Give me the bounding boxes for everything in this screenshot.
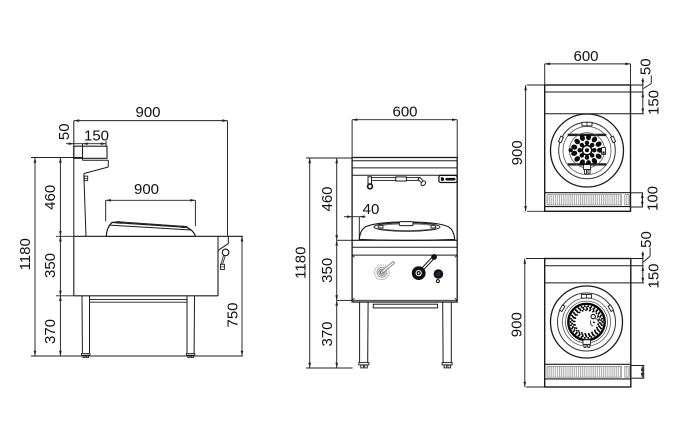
svg-text:1180: 1180 (293, 247, 310, 279)
svg-text:900: 900 (509, 312, 526, 337)
svg-text:600: 600 (392, 104, 417, 121)
svg-text:40: 40 (363, 201, 380, 218)
svg-text:150: 150 (645, 90, 662, 115)
svg-text:100: 100 (645, 186, 662, 211)
svg-text:460: 460 (42, 185, 59, 210)
svg-text:50: 50 (56, 123, 73, 140)
svg-text:900: 900 (135, 104, 160, 121)
svg-text:50: 50 (638, 231, 655, 248)
svg-text:460: 460 (319, 186, 336, 211)
svg-text:1180: 1180 (17, 238, 34, 270)
svg-text:350: 350 (42, 253, 59, 278)
svg-text:900: 900 (509, 140, 526, 165)
svg-text:370: 370 (319, 321, 336, 346)
svg-text:370: 370 (42, 319, 59, 344)
svg-text:350: 350 (319, 258, 336, 283)
svg-text:600: 600 (573, 48, 598, 65)
svg-text:150: 150 (645, 263, 662, 288)
svg-text:50: 50 (638, 58, 655, 75)
svg-text:900: 900 (134, 181, 159, 198)
svg-text:750: 750 (225, 302, 242, 327)
svg-text:150: 150 (84, 127, 109, 144)
